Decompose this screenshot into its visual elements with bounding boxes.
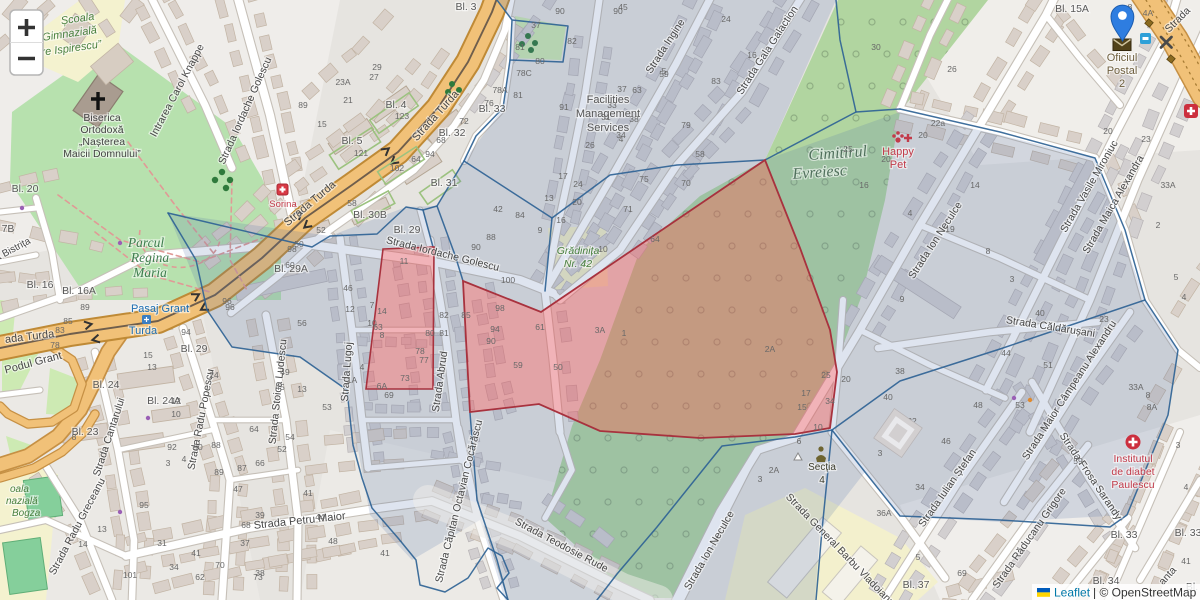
svg-text:4: 4 xyxy=(819,475,825,486)
svg-text:3: 3 xyxy=(1176,440,1181,450)
svg-text:70: 70 xyxy=(215,560,225,570)
svg-text:76: 76 xyxy=(484,98,494,108)
svg-text:13: 13 xyxy=(147,362,157,372)
svg-text:8: 8 xyxy=(986,246,991,256)
svg-text:81: 81 xyxy=(513,90,523,100)
svg-text:59: 59 xyxy=(1073,456,1083,466)
svg-text:15: 15 xyxy=(797,402,807,412)
svg-text:31: 31 xyxy=(157,538,167,548)
svg-text:4: 4 xyxy=(1182,292,1187,302)
svg-text:47: 47 xyxy=(233,484,243,494)
svg-text:61: 61 xyxy=(535,322,545,332)
svg-text:27: 27 xyxy=(369,72,379,82)
svg-text:90: 90 xyxy=(555,6,565,16)
svg-text:Bl. 31: Bl. 31 xyxy=(431,177,458,189)
svg-text:2A: 2A xyxy=(769,465,780,475)
svg-text:123: 123 xyxy=(395,111,409,121)
svg-text:54: 54 xyxy=(285,432,295,442)
svg-text:Institutul: Institutul xyxy=(1113,453,1152,465)
svg-text:14: 14 xyxy=(78,539,88,549)
svg-text:Maicii Domnului”: Maicii Domnului” xyxy=(63,148,141,160)
svg-text:15: 15 xyxy=(317,119,327,129)
svg-text:12: 12 xyxy=(171,396,181,406)
svg-text:89: 89 xyxy=(80,302,90,312)
svg-text:nazială: nazială xyxy=(6,496,38,507)
svg-text:94: 94 xyxy=(425,149,435,159)
svg-text:Bl. 37: Bl. 37 xyxy=(903,579,930,591)
svg-text:14: 14 xyxy=(970,180,980,190)
svg-text:63: 63 xyxy=(632,85,642,95)
svg-text:34: 34 xyxy=(169,562,179,572)
svg-text:17: 17 xyxy=(801,388,811,398)
svg-text:Regina: Regina xyxy=(130,250,169,265)
svg-text:7B: 7B xyxy=(2,223,15,235)
svg-text:Secția: Secția xyxy=(808,462,836,473)
svg-text:17: 17 xyxy=(558,171,568,181)
svg-text:1: 1 xyxy=(622,328,627,338)
svg-text:8: 8 xyxy=(1146,390,1151,400)
svg-text:Bl. 4: Bl. 4 xyxy=(385,99,406,111)
svg-text:Pet: Pet xyxy=(890,159,907,171)
svg-text:71: 71 xyxy=(623,204,633,214)
svg-text:73: 73 xyxy=(400,373,410,383)
svg-text:20: 20 xyxy=(572,197,582,207)
svg-text:75: 75 xyxy=(639,174,649,184)
svg-text:Grădinița: Grădinița xyxy=(557,245,600,257)
svg-text:24: 24 xyxy=(721,14,731,24)
svg-text:11: 11 xyxy=(400,256,409,266)
svg-text:Bl. 29: Bl. 29 xyxy=(394,224,421,236)
svg-text:64: 64 xyxy=(411,154,421,164)
svg-text:41: 41 xyxy=(380,548,390,558)
svg-text:90: 90 xyxy=(486,336,496,346)
svg-text:30: 30 xyxy=(871,42,881,52)
svg-text:44: 44 xyxy=(1001,348,1011,358)
svg-text:59: 59 xyxy=(513,360,523,370)
svg-text:10: 10 xyxy=(813,422,823,432)
svg-text:89: 89 xyxy=(214,467,224,477)
svg-text:83: 83 xyxy=(711,76,721,86)
svg-text:45: 45 xyxy=(275,382,285,392)
svg-text:58: 58 xyxy=(347,198,357,208)
svg-text:14: 14 xyxy=(377,306,387,316)
svg-text:Bl. 24: Bl. 24 xyxy=(93,379,120,391)
svg-text:78: 78 xyxy=(415,346,425,356)
svg-text:98: 98 xyxy=(495,303,505,313)
svg-text:121: 121 xyxy=(354,148,368,158)
svg-text:16: 16 xyxy=(747,50,757,60)
svg-text:oala: oala xyxy=(10,484,29,495)
svg-text:Biserica: Biserica xyxy=(83,112,121,124)
svg-text:23: 23 xyxy=(1099,314,1109,324)
svg-text:91: 91 xyxy=(559,102,569,112)
svg-text:78C: 78C xyxy=(516,68,532,78)
svg-text:52: 52 xyxy=(316,225,326,235)
svg-text:64: 64 xyxy=(249,424,259,434)
svg-text:50: 50 xyxy=(553,362,563,372)
svg-text:64: 64 xyxy=(650,234,660,244)
svg-text:26: 26 xyxy=(947,64,957,74)
svg-text:88: 88 xyxy=(486,232,496,242)
svg-text:Oficiul: Oficiul xyxy=(1107,52,1138,64)
svg-text:6A: 6A xyxy=(377,381,388,391)
svg-text:2: 2 xyxy=(1119,78,1125,90)
svg-text:68: 68 xyxy=(241,520,251,530)
svg-text:6: 6 xyxy=(797,436,802,446)
svg-text:89: 89 xyxy=(298,100,308,110)
svg-text:34: 34 xyxy=(915,482,925,492)
svg-text:1A: 1A xyxy=(347,375,358,385)
svg-text:52: 52 xyxy=(277,444,287,454)
svg-text:25: 25 xyxy=(843,144,853,154)
svg-text:73: 73 xyxy=(253,572,263,582)
svg-text:40: 40 xyxy=(1035,308,1045,318)
svg-text:80: 80 xyxy=(535,56,545,66)
svg-text:95: 95 xyxy=(139,500,149,510)
svg-text:3A: 3A xyxy=(595,325,606,335)
svg-text:„Nașterea: „Nașterea xyxy=(79,136,125,148)
svg-text:Maria: Maria xyxy=(132,265,167,280)
svg-text:33: 33 xyxy=(607,100,617,110)
svg-text:16: 16 xyxy=(556,215,566,225)
svg-text:34: 34 xyxy=(825,396,835,406)
svg-text:Bl. 16A: Bl. 16A xyxy=(62,285,96,297)
svg-text:45: 45 xyxy=(618,2,628,12)
svg-text:100: 100 xyxy=(501,275,515,285)
svg-text:94: 94 xyxy=(181,327,191,337)
svg-text:48: 48 xyxy=(328,536,338,546)
svg-text:2: 2 xyxy=(1156,220,1161,230)
svg-text:42: 42 xyxy=(493,204,503,214)
svg-text:24: 24 xyxy=(573,179,583,189)
svg-text:90: 90 xyxy=(471,242,481,252)
svg-text:41: 41 xyxy=(303,488,313,498)
svg-text:Parcul: Parcul xyxy=(127,235,164,250)
svg-text:4: 4 xyxy=(619,134,624,144)
svg-text:36A: 36A xyxy=(876,508,891,518)
svg-text:79: 79 xyxy=(681,120,691,130)
svg-text:83: 83 xyxy=(55,325,65,335)
svg-text:21: 21 xyxy=(343,95,353,105)
svg-text:82: 82 xyxy=(567,36,577,46)
svg-text:20: 20 xyxy=(1103,126,1113,136)
svg-text:19: 19 xyxy=(945,224,955,234)
svg-text:5: 5 xyxy=(1174,272,1179,282)
svg-text:69: 69 xyxy=(957,568,967,578)
svg-text:| © OpenStreetMap: | © OpenStreetMap xyxy=(1093,586,1197,600)
svg-text:4: 4 xyxy=(908,208,913,218)
svg-text:Bogza: Bogza xyxy=(12,508,41,519)
svg-text:31: 31 xyxy=(601,112,611,122)
svg-text:Bl. 29: Bl. 29 xyxy=(181,343,208,355)
svg-text:15: 15 xyxy=(143,350,153,360)
svg-text:de diabet: de diabet xyxy=(1111,466,1154,478)
svg-text:13: 13 xyxy=(297,384,307,394)
svg-text:3: 3 xyxy=(878,448,883,458)
svg-text:101: 101 xyxy=(123,570,137,580)
svg-text:4A: 4A xyxy=(1143,8,1154,18)
svg-text:12: 12 xyxy=(345,304,355,314)
svg-text:96: 96 xyxy=(225,302,235,312)
svg-text:Bl. 33: Bl. 33 xyxy=(1111,529,1138,541)
svg-text:41: 41 xyxy=(1181,556,1191,566)
svg-text:39: 39 xyxy=(255,510,265,520)
svg-text:22a: 22a xyxy=(931,118,945,128)
svg-text:78: 78 xyxy=(50,340,60,350)
svg-text:Bl. 33: Bl. 33 xyxy=(1175,527,1200,539)
svg-text:53: 53 xyxy=(1015,400,1025,410)
svg-text:62: 62 xyxy=(195,572,205,582)
svg-text:69: 69 xyxy=(384,390,394,400)
svg-text:98: 98 xyxy=(287,244,297,254)
svg-text:46: 46 xyxy=(941,436,951,446)
svg-text:13: 13 xyxy=(97,524,107,534)
svg-text:26: 26 xyxy=(585,140,595,150)
svg-text:5: 5 xyxy=(916,552,921,562)
svg-text:Bl. 30B: Bl. 30B xyxy=(353,209,387,221)
svg-text:9: 9 xyxy=(900,294,905,304)
svg-text:Sorina: Sorina xyxy=(269,199,297,210)
svg-text:40: 40 xyxy=(883,392,893,402)
svg-text:46: 46 xyxy=(343,283,353,293)
svg-text:Bl. 15A: Bl. 15A xyxy=(1055,3,1089,15)
svg-text:90: 90 xyxy=(193,442,203,452)
svg-text:92: 92 xyxy=(167,442,177,452)
svg-text:56: 56 xyxy=(297,318,307,328)
svg-text:3: 3 xyxy=(758,474,763,484)
svg-text:38: 38 xyxy=(629,114,639,124)
svg-text:81: 81 xyxy=(439,328,449,338)
svg-text:87: 87 xyxy=(237,463,247,473)
svg-text:Bl. 16: Bl. 16 xyxy=(27,279,54,291)
svg-text:102: 102 xyxy=(390,163,404,173)
svg-text:10: 10 xyxy=(367,318,377,328)
svg-text:20: 20 xyxy=(918,130,928,140)
svg-text:85: 85 xyxy=(461,310,471,320)
svg-text:Ortodoxă: Ortodoxă xyxy=(80,124,123,136)
svg-text:7: 7 xyxy=(370,300,375,310)
svg-text:70: 70 xyxy=(681,178,691,188)
svg-text:49: 49 xyxy=(280,367,290,377)
svg-text:88: 88 xyxy=(211,440,221,450)
svg-text:20: 20 xyxy=(841,374,851,384)
svg-text:68: 68 xyxy=(436,135,446,145)
svg-text:Pasaj Grant: Pasaj Grant xyxy=(131,303,189,315)
svg-text:94: 94 xyxy=(490,324,500,334)
svg-text:23: 23 xyxy=(1141,134,1151,144)
svg-text:4: 4 xyxy=(360,362,365,372)
svg-text:16: 16 xyxy=(859,180,869,190)
svg-text:4: 4 xyxy=(182,454,187,464)
svg-text:Bl. 5: Bl. 5 xyxy=(341,135,362,147)
svg-text:77: 77 xyxy=(419,355,429,365)
svg-text:24: 24 xyxy=(209,370,219,380)
svg-text:10: 10 xyxy=(171,409,181,419)
svg-text:37: 37 xyxy=(617,84,627,94)
svg-text:Paulescu: Paulescu xyxy=(1111,479,1154,491)
svg-text:41: 41 xyxy=(191,548,201,558)
svg-text:81: 81 xyxy=(515,42,525,52)
svg-text:13: 13 xyxy=(544,193,554,203)
svg-text:66: 66 xyxy=(255,458,265,468)
svg-text:51: 51 xyxy=(1043,360,1053,370)
svg-text:58: 58 xyxy=(695,149,705,159)
svg-text:3: 3 xyxy=(1010,274,1015,284)
svg-text:72: 72 xyxy=(459,116,469,126)
svg-text:Leaflet: Leaflet xyxy=(1054,586,1091,600)
svg-text:20: 20 xyxy=(881,154,891,164)
svg-text:33A: 33A xyxy=(1128,382,1143,392)
svg-text:33A: 33A xyxy=(1160,180,1175,190)
svg-text:8: 8 xyxy=(72,432,77,442)
svg-text:48: 48 xyxy=(973,400,983,410)
svg-text:80: 80 xyxy=(425,328,435,338)
svg-text:84: 84 xyxy=(515,210,525,220)
svg-text:23A: 23A xyxy=(335,77,350,87)
svg-text:37: 37 xyxy=(240,538,250,548)
svg-text:25: 25 xyxy=(821,370,831,380)
svg-text:9: 9 xyxy=(538,225,543,235)
svg-text:60: 60 xyxy=(285,260,295,270)
svg-text:Bl. 3: Bl. 3 xyxy=(455,1,476,13)
svg-text:53: 53 xyxy=(322,402,332,412)
svg-text:3: 3 xyxy=(166,458,171,468)
svg-text:Turda: Turda xyxy=(129,325,158,337)
svg-text:38: 38 xyxy=(895,366,905,376)
svg-text:44: 44 xyxy=(315,512,325,522)
svg-text:Bl. 20: Bl. 20 xyxy=(12,183,39,195)
svg-text:Nr. 42: Nr. 42 xyxy=(564,258,592,270)
svg-text:4: 4 xyxy=(1184,482,1189,492)
svg-text:Postal: Postal xyxy=(1107,65,1138,77)
svg-text:2A: 2A xyxy=(765,344,776,354)
svg-text:37: 37 xyxy=(531,20,541,30)
svg-text:8A: 8A xyxy=(1147,402,1158,412)
svg-text:78A: 78A xyxy=(492,85,507,95)
svg-text:8: 8 xyxy=(380,330,385,340)
svg-text:82: 82 xyxy=(439,310,449,320)
svg-text:5: 5 xyxy=(662,66,667,76)
svg-text:29: 29 xyxy=(372,62,382,72)
svg-text:10: 10 xyxy=(598,244,608,254)
